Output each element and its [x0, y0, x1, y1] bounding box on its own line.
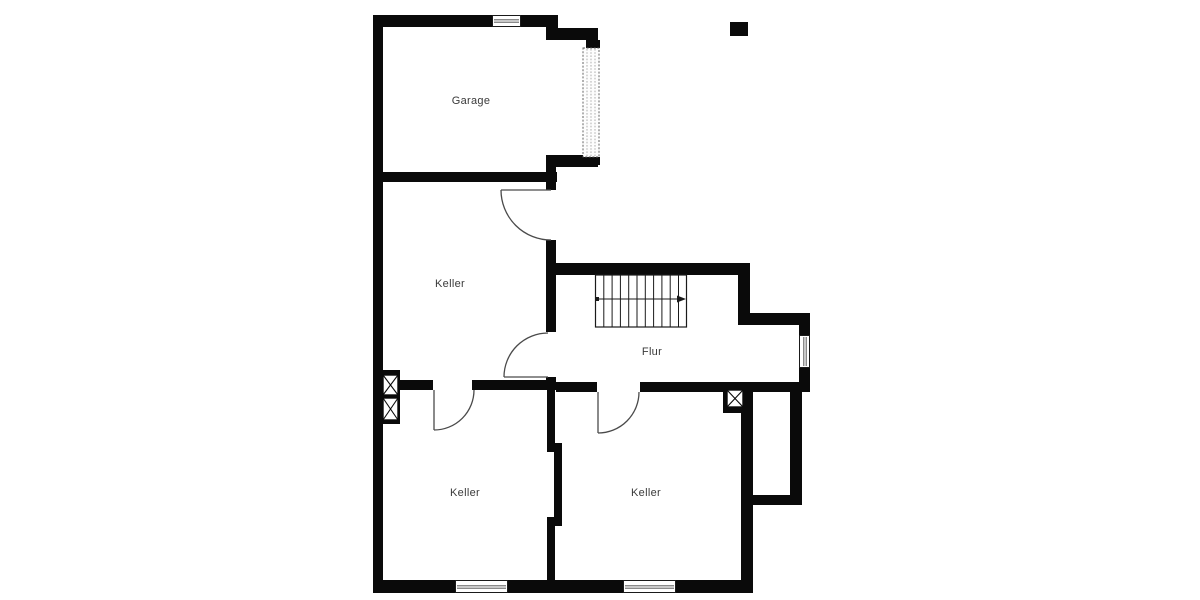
room-label-flur: Flur [642, 346, 662, 358]
floor-plan-canvas: Garage Keller Flur Keller Keller [0, 0, 1200, 600]
door-keller-bottom-left [434, 390, 474, 430]
door-keller-bottom-right [598, 392, 639, 433]
shaft-flur-right-icon [723, 382, 748, 413]
plan-symbols-layer [0, 0, 1200, 600]
garage-door-icon [583, 48, 599, 157]
room-label-keller-middle: Keller [435, 278, 465, 290]
room-label-keller-bottom-left: Keller [450, 487, 480, 499]
shaft-left-icons [380, 370, 400, 424]
door-flur-to-keller-middle [504, 333, 548, 377]
room-label-keller-bottom-right: Keller [631, 487, 661, 499]
stairs-icon [595, 275, 687, 327]
door-exterior-keller-middle [501, 190, 551, 240]
room-label-garage: Garage [452, 95, 491, 107]
